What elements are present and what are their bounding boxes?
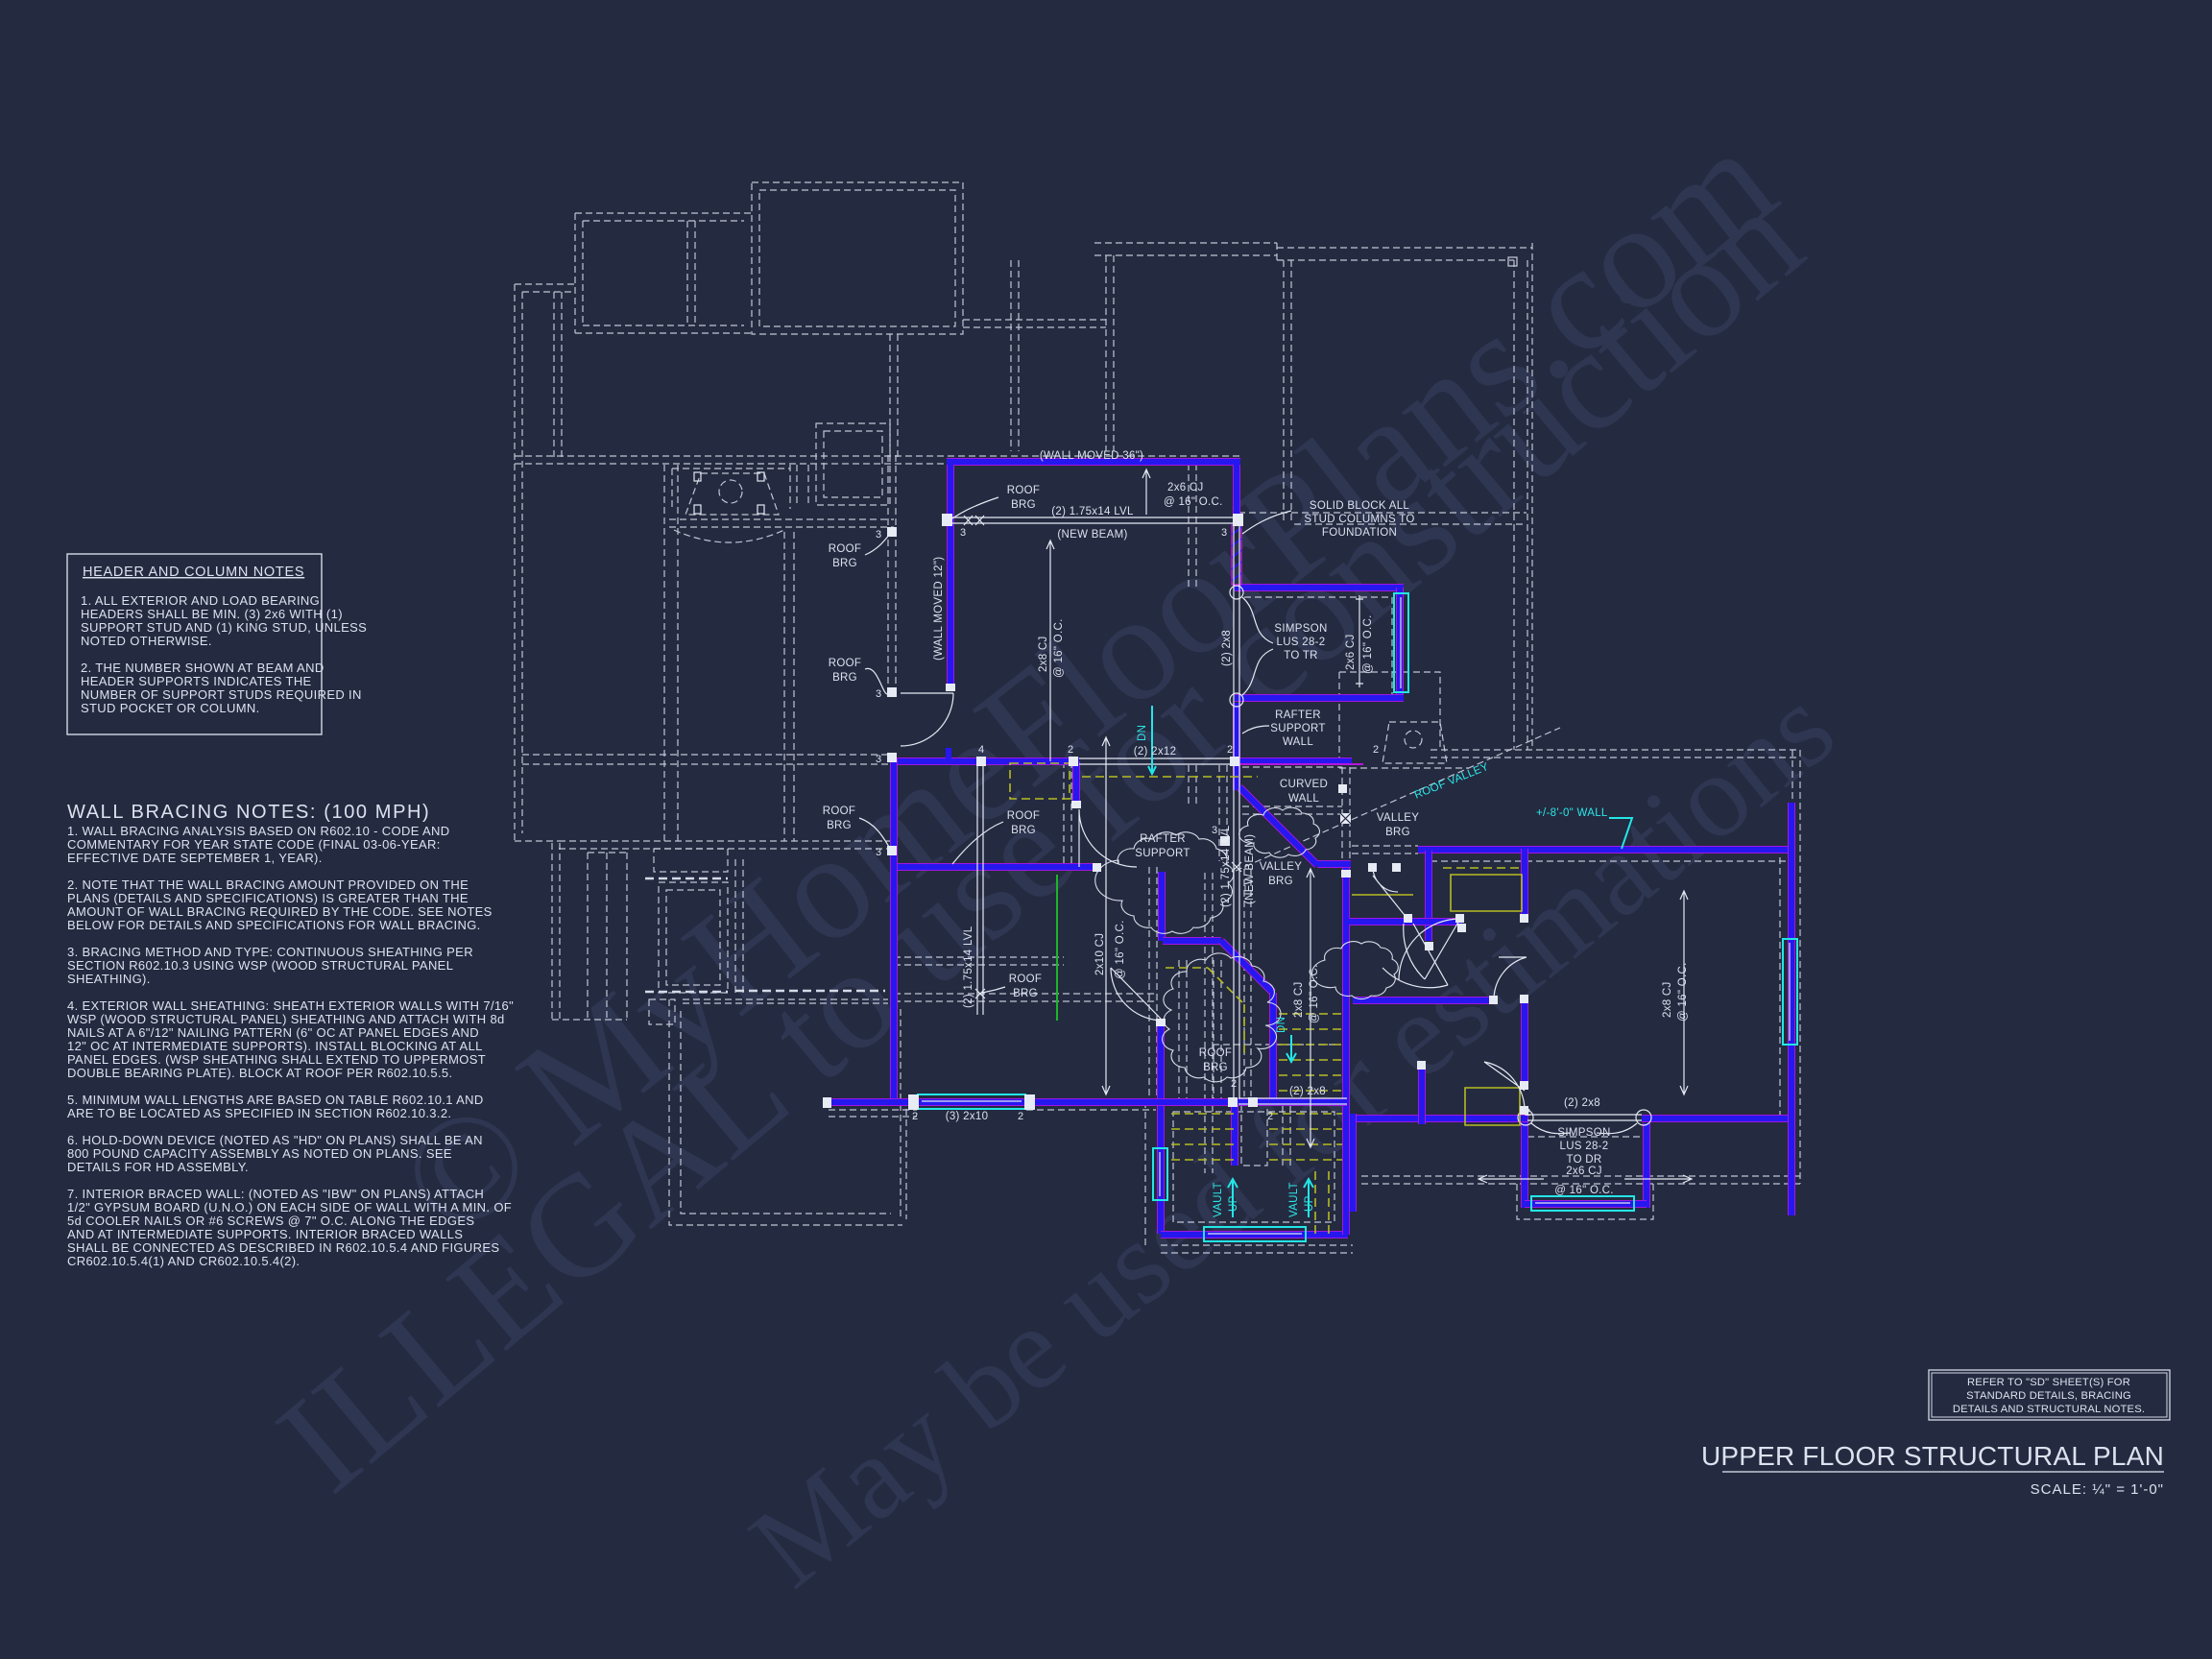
svg-text:(WALL MOVED 36"): (WALL MOVED 36") <box>1040 450 1143 462</box>
svg-text:(NEW BEAM): (NEW BEAM) <box>1244 834 1256 904</box>
svg-text:COMMENTARY FOR YEAR STATE CODE: COMMENTARY FOR YEAR STATE CODE (FINAL 03… <box>67 837 441 852</box>
svg-text:TO DR: TO DR <box>1566 1154 1601 1166</box>
svg-text:2: 2 <box>1525 1107 1530 1118</box>
svg-text:SIMPSON: SIMPSON <box>1557 1127 1610 1139</box>
svg-text:2x6 CJ: 2x6 CJ <box>1566 1166 1602 1177</box>
svg-text:PANEL EDGES. (WSP SHEATHING SH: PANEL EDGES. (WSP SHEATHING SHALL EXTEND… <box>67 1052 486 1067</box>
svg-text:SUPPORT STUD AND (1) KING STUD: SUPPORT STUD AND (1) KING STUD, UNLESS <box>81 620 367 635</box>
svg-text:UP: UP <box>1228 1195 1239 1212</box>
svg-text:SECTION R602.10.3 USING WSP (W: SECTION R602.10.3 USING WSP (WOOD STRUCT… <box>67 958 453 973</box>
svg-text:(2) 2x8: (2) 2x8 <box>1221 630 1233 666</box>
svg-text:2: 2 <box>1267 1111 1273 1122</box>
svg-text:ROOF: ROOF <box>1007 810 1040 822</box>
svg-text:TO TR: TO TR <box>1284 650 1318 661</box>
svg-text:BRG: BRG <box>1011 825 1036 836</box>
svg-text:ROOF: ROOF <box>829 658 861 669</box>
svg-text:SHALL BE CONNECTED AS DESCRIBE: SHALL BE CONNECTED AS DESCRIBED IN R602.… <box>67 1240 499 1255</box>
svg-text:BELOW FOR DETAILS AND SPECIFIC: BELOW FOR DETAILS AND SPECIFICATIONS FOR… <box>67 918 481 932</box>
svg-text:BRG: BRG <box>832 558 857 569</box>
svg-text:NUMBER OF SUPPORT STUDS REQUIR: NUMBER OF SUPPORT STUDS REQUIRED IN <box>81 687 362 702</box>
svg-text:BRG: BRG <box>1011 499 1036 511</box>
svg-text:RAFTER: RAFTER <box>1275 709 1321 721</box>
svg-text:SUPPORT: SUPPORT <box>1135 848 1190 859</box>
svg-text:1. WALL BRACING ANALYSIS BASED: 1. WALL BRACING ANALYSIS BASED ON R602.1… <box>67 824 449 838</box>
svg-text:@ 16" O.C.: @ 16" O.C. <box>1115 920 1126 979</box>
svg-text:NOTED OTHERWISE.: NOTED OTHERWISE. <box>81 634 212 648</box>
svg-text:DN: DN <box>1137 725 1148 741</box>
svg-text:2. THE NUMBER SHOWN AT BEAM AN: 2. THE NUMBER SHOWN AT BEAM AND <box>81 661 325 675</box>
svg-text:EFFECTIVE DATE SEPTEMBER 1, YE: EFFECTIVE DATE SEPTEMBER 1, YEAR). <box>67 851 323 865</box>
svg-text:(2) 1.75x14 LVL: (2) 1.75x14 LVL <box>1051 506 1134 517</box>
svg-text:ARE TO BE LOCATED AS SPECIFIED: ARE TO BE LOCATED AS SPECIFIED IN SECTIO… <box>67 1106 451 1120</box>
svg-text:(2) 1.75x14 LVL: (2) 1.75x14 LVL <box>963 926 974 1008</box>
svg-text:SOLID BLOCK ALL: SOLID BLOCK ALL <box>1310 500 1410 512</box>
svg-text:(3) 2x10: (3) 2x10 <box>946 1111 989 1122</box>
svg-text:WALL BRACING NOTES: (100 MPH): WALL BRACING NOTES: (100 MPH) <box>67 802 430 823</box>
svg-text:AND AT INTERMEDIATE SUPPORTS.: AND AT INTERMEDIATE SUPPORTS. INTERIOR B… <box>67 1227 463 1241</box>
svg-text:STUD POCKET OR COLUMN.: STUD POCKET OR COLUMN. <box>81 701 260 715</box>
svg-text:ROOF: ROOF <box>829 543 861 555</box>
svg-text:5d COOLER NAILS OR #6 SCREWS @: 5d COOLER NAILS OR #6 SCREWS @ 7" O.C. A… <box>67 1214 474 1228</box>
svg-text:ROOF: ROOF <box>1009 974 1042 985</box>
svg-text:2: 2 <box>1068 744 1073 756</box>
svg-text:VALLEY: VALLEY <box>1377 812 1419 824</box>
svg-text:BRG: BRG <box>1013 988 1038 999</box>
svg-text:(WALL MOVED 12"): (WALL MOVED 12") <box>933 557 945 661</box>
svg-text:2x8 CJ: 2x8 CJ <box>1293 981 1305 1018</box>
svg-text:7. INTERIOR BRACED WALL: (NOTE: 7. INTERIOR BRACED WALL: (NOTED AS "IBW"… <box>67 1187 484 1201</box>
svg-text:BRG: BRG <box>1385 827 1410 838</box>
svg-text:BRG: BRG <box>827 820 852 831</box>
svg-text:SUPPORT: SUPPORT <box>1270 723 1325 734</box>
svg-text:STANDARD DETAILS, BRACING: STANDARD DETAILS, BRACING <box>1966 1390 2131 1402</box>
svg-text:3. BRACING METHOD AND TYPE: CO: 3. BRACING METHOD AND TYPE: CONTINUOUS S… <box>67 945 473 959</box>
svg-text:DOUBLE BEARING PLATE). BLOCK A: DOUBLE BEARING PLATE). BLOCK AT ROOF PER… <box>67 1066 452 1080</box>
svg-text:HEADER SUPPORTS INDICATES THE: HEADER SUPPORTS INDICATES THE <box>81 674 312 688</box>
svg-text:WALL: WALL <box>1288 793 1319 805</box>
svg-text:HEADERS SHALL BE MIN. (3) 2x6: HEADERS SHALL BE MIN. (3) 2x6 WITH (1) <box>81 607 343 621</box>
svg-text:1. ALL EXTERIOR AND LOAD BEARI: 1. ALL EXTERIOR AND LOAD BEARING <box>81 593 320 608</box>
svg-text:(2) 2x8: (2) 2x8 <box>1289 1086 1326 1097</box>
svg-text:UP: UP <box>1304 1195 1315 1212</box>
svg-text:STUD COLUMNS TO: STUD COLUMNS TO <box>1304 514 1414 525</box>
svg-text:CR602.10.5.4(1) AND CR602.10.5: CR602.10.5.4(1) AND CR602.10.5.4(2). <box>67 1254 300 1268</box>
svg-text:2x6 CJ: 2x6 CJ <box>1345 634 1357 670</box>
svg-text:800 POUND CAPACITY ASSEMBLY AS: 800 POUND CAPACITY ASSEMBLY AS NOTED ON … <box>67 1146 452 1161</box>
svg-text:3: 3 <box>876 688 881 700</box>
svg-text:2: 2 <box>1231 1078 1237 1090</box>
svg-text:3: 3 <box>1212 825 1217 836</box>
svg-text:HEADER AND COLUMN NOTES: HEADER AND COLUMN NOTES <box>83 565 304 580</box>
svg-text:FOUNDATION: FOUNDATION <box>1322 527 1397 539</box>
svg-text:5. MINIMUM WALL LENGTHS ARE BA: 5. MINIMUM WALL LENGTHS ARE BASED ON TAB… <box>67 1093 484 1107</box>
svg-text:VAULT: VAULT <box>1213 1182 1224 1217</box>
svg-text:BRG: BRG <box>832 672 857 684</box>
svg-text:RAFTER: RAFTER <box>1140 833 1186 845</box>
svg-text:UPPER FLOOR STRUCTURAL PLAN: UPPER FLOOR STRUCTURAL PLAN <box>1701 1441 2164 1471</box>
svg-text:2x10 CJ: 2x10 CJ <box>1094 933 1106 975</box>
svg-text:2: 2 <box>912 1111 918 1122</box>
svg-text:@ 16" O.C.: @ 16" O.C. <box>1554 1185 1614 1196</box>
svg-text:2. NOTE THAT THE WALL BRACING: 2. NOTE THAT THE WALL BRACING AMOUNT PRO… <box>67 878 469 892</box>
svg-text:4. EXTERIOR WALL SHEATHING: SH: 4. EXTERIOR WALL SHEATHING: SHEATH EXTER… <box>67 998 514 1013</box>
svg-text:4: 4 <box>978 744 984 756</box>
svg-text:CURVED: CURVED <box>1280 779 1328 790</box>
svg-text:3: 3 <box>876 529 881 541</box>
svg-text:WALL: WALL <box>1283 736 1313 748</box>
svg-text:ROOF: ROOF <box>1199 1047 1232 1059</box>
svg-text:BRG: BRG <box>1268 876 1293 887</box>
svg-text:2x6 CJ: 2x6 CJ <box>1167 482 1204 493</box>
svg-text:3: 3 <box>1221 527 1227 539</box>
svg-text:SIMPSON: SIMPSON <box>1274 623 1327 635</box>
svg-text:+/-8'-0" WALL: +/-8'-0" WALL <box>1536 807 1608 819</box>
svg-text:LUS 28-2: LUS 28-2 <box>1560 1141 1609 1152</box>
svg-text:DETAILS AND STRUCTURAL NOTES.: DETAILS AND STRUCTURAL NOTES. <box>1953 1404 2145 1415</box>
svg-text:2: 2 <box>1018 1111 1023 1122</box>
svg-text:@ 16" O.C.: @ 16" O.C. <box>1053 618 1065 678</box>
svg-text:AMOUNT OF WALL BRACING REQUIRE: AMOUNT OF WALL BRACING REQUIRED BY THE C… <box>67 904 493 919</box>
svg-text:1/2" GYPSUM BOARD (U.N.O.) ON: 1/2" GYPSUM BOARD (U.N.O.) ON EACH SIDE … <box>67 1200 512 1214</box>
svg-text:(2) 2x8: (2) 2x8 <box>1564 1097 1600 1109</box>
svg-text:6. HOLD-DOWN DEVICE (NOTED AS: 6. HOLD-DOWN DEVICE (NOTED AS "HD" ON PL… <box>67 1133 483 1147</box>
svg-text:@ 16" O.C.: @ 16" O.C. <box>1164 496 1223 508</box>
svg-text:DN: DN <box>1276 1017 1287 1033</box>
svg-text:ROOF: ROOF <box>1007 485 1040 496</box>
svg-text:@ 16" O.C.: @ 16" O.C. <box>1362 614 1374 674</box>
svg-text:3: 3 <box>960 527 966 539</box>
svg-text:2: 2 <box>1227 744 1233 756</box>
svg-text:3: 3 <box>876 847 881 858</box>
svg-text:@ 16" O.C.: @ 16" O.C. <box>1677 962 1689 1022</box>
svg-text:(2) 2x12: (2) 2x12 <box>1134 746 1177 757</box>
svg-text:NAILS AT A 6"/12" NAILING PATT: NAILS AT A 6"/12" NAILING PATTERN (6" OC… <box>67 1025 479 1040</box>
svg-text:VALLEY: VALLEY <box>1260 861 1302 873</box>
svg-text:3: 3 <box>876 754 881 765</box>
svg-text:2x8 CJ: 2x8 CJ <box>1662 981 1673 1018</box>
svg-text:REFER TO "SD" SHEET(S) FOR: REFER TO "SD" SHEET(S) FOR <box>1967 1377 2130 1388</box>
svg-text:SHEATHING).: SHEATHING). <box>67 972 151 986</box>
svg-text:PLANS (DETAILS AND SPECIFICATI: PLANS (DETAILS AND SPECIFICATIONS) IS GR… <box>67 891 469 905</box>
svg-text:12" OC AT INTERMEDIATE SUPPORT: 12" OC AT INTERMEDIATE SUPPORTS). INSTAL… <box>67 1039 483 1053</box>
svg-text:LUS 28-2: LUS 28-2 <box>1277 637 1326 648</box>
svg-text:(NEW BEAM): (NEW BEAM) <box>1057 529 1127 541</box>
svg-text:DETAILS FOR HD ASSEMBLY.: DETAILS FOR HD ASSEMBLY. <box>67 1160 249 1174</box>
svg-text:2: 2 <box>1373 744 1379 756</box>
svg-text:WSP (WOOD STRUCTURAL PANEL) SH: WSP (WOOD STRUCTURAL PANEL) SHEATHING AN… <box>67 1012 505 1026</box>
svg-text:SCALE: ¼" = 1'-0": SCALE: ¼" = 1'-0" <box>2031 1481 2164 1498</box>
svg-text:@ 16" O.C.: @ 16" O.C. <box>1309 964 1320 1023</box>
svg-text:2x8 CJ: 2x8 CJ <box>1038 636 1049 672</box>
svg-text:(2) 1.75x14 LVL: (2) 1.75x14 LVL <box>1220 825 1232 907</box>
svg-text:BRG: BRG <box>1203 1062 1228 1073</box>
svg-text:VAULT: VAULT <box>1288 1182 1300 1217</box>
svg-text:ROOF: ROOF <box>823 805 855 817</box>
